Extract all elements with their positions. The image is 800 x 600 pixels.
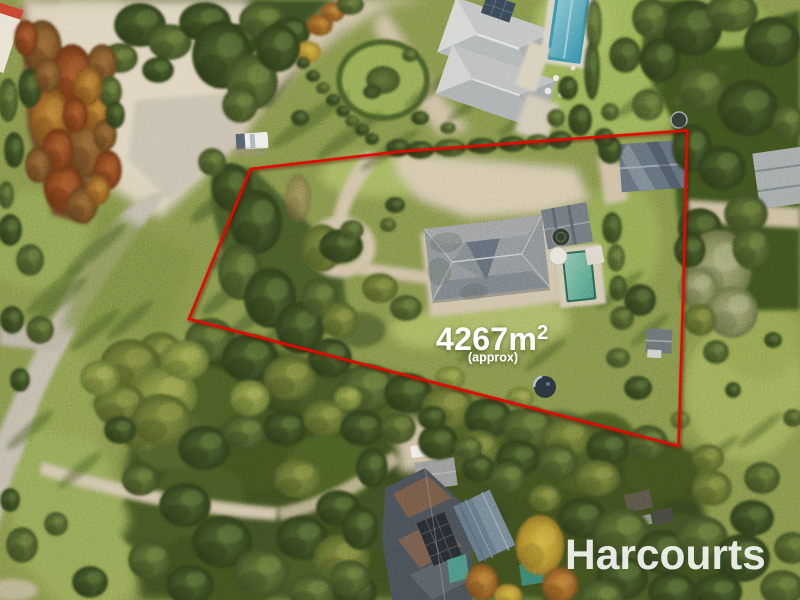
- svg-text:(approx): (approx): [468, 351, 518, 365]
- svg-text:Harcourts: Harcourts: [565, 532, 766, 579]
